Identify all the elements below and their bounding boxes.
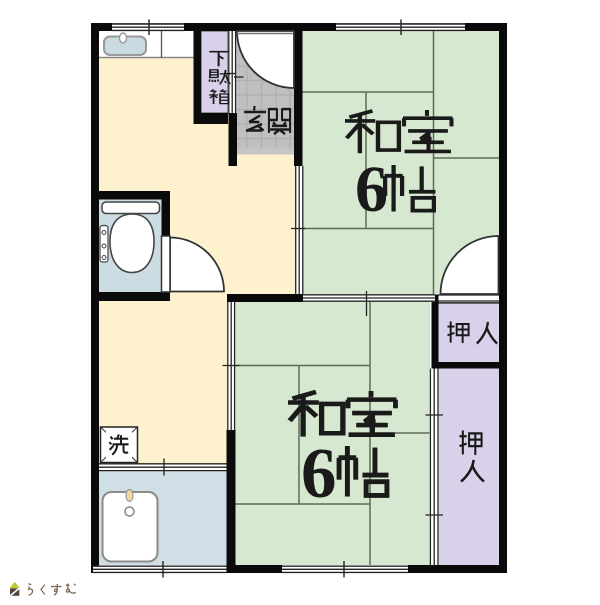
svg-text:6: 6 (301, 435, 337, 513)
